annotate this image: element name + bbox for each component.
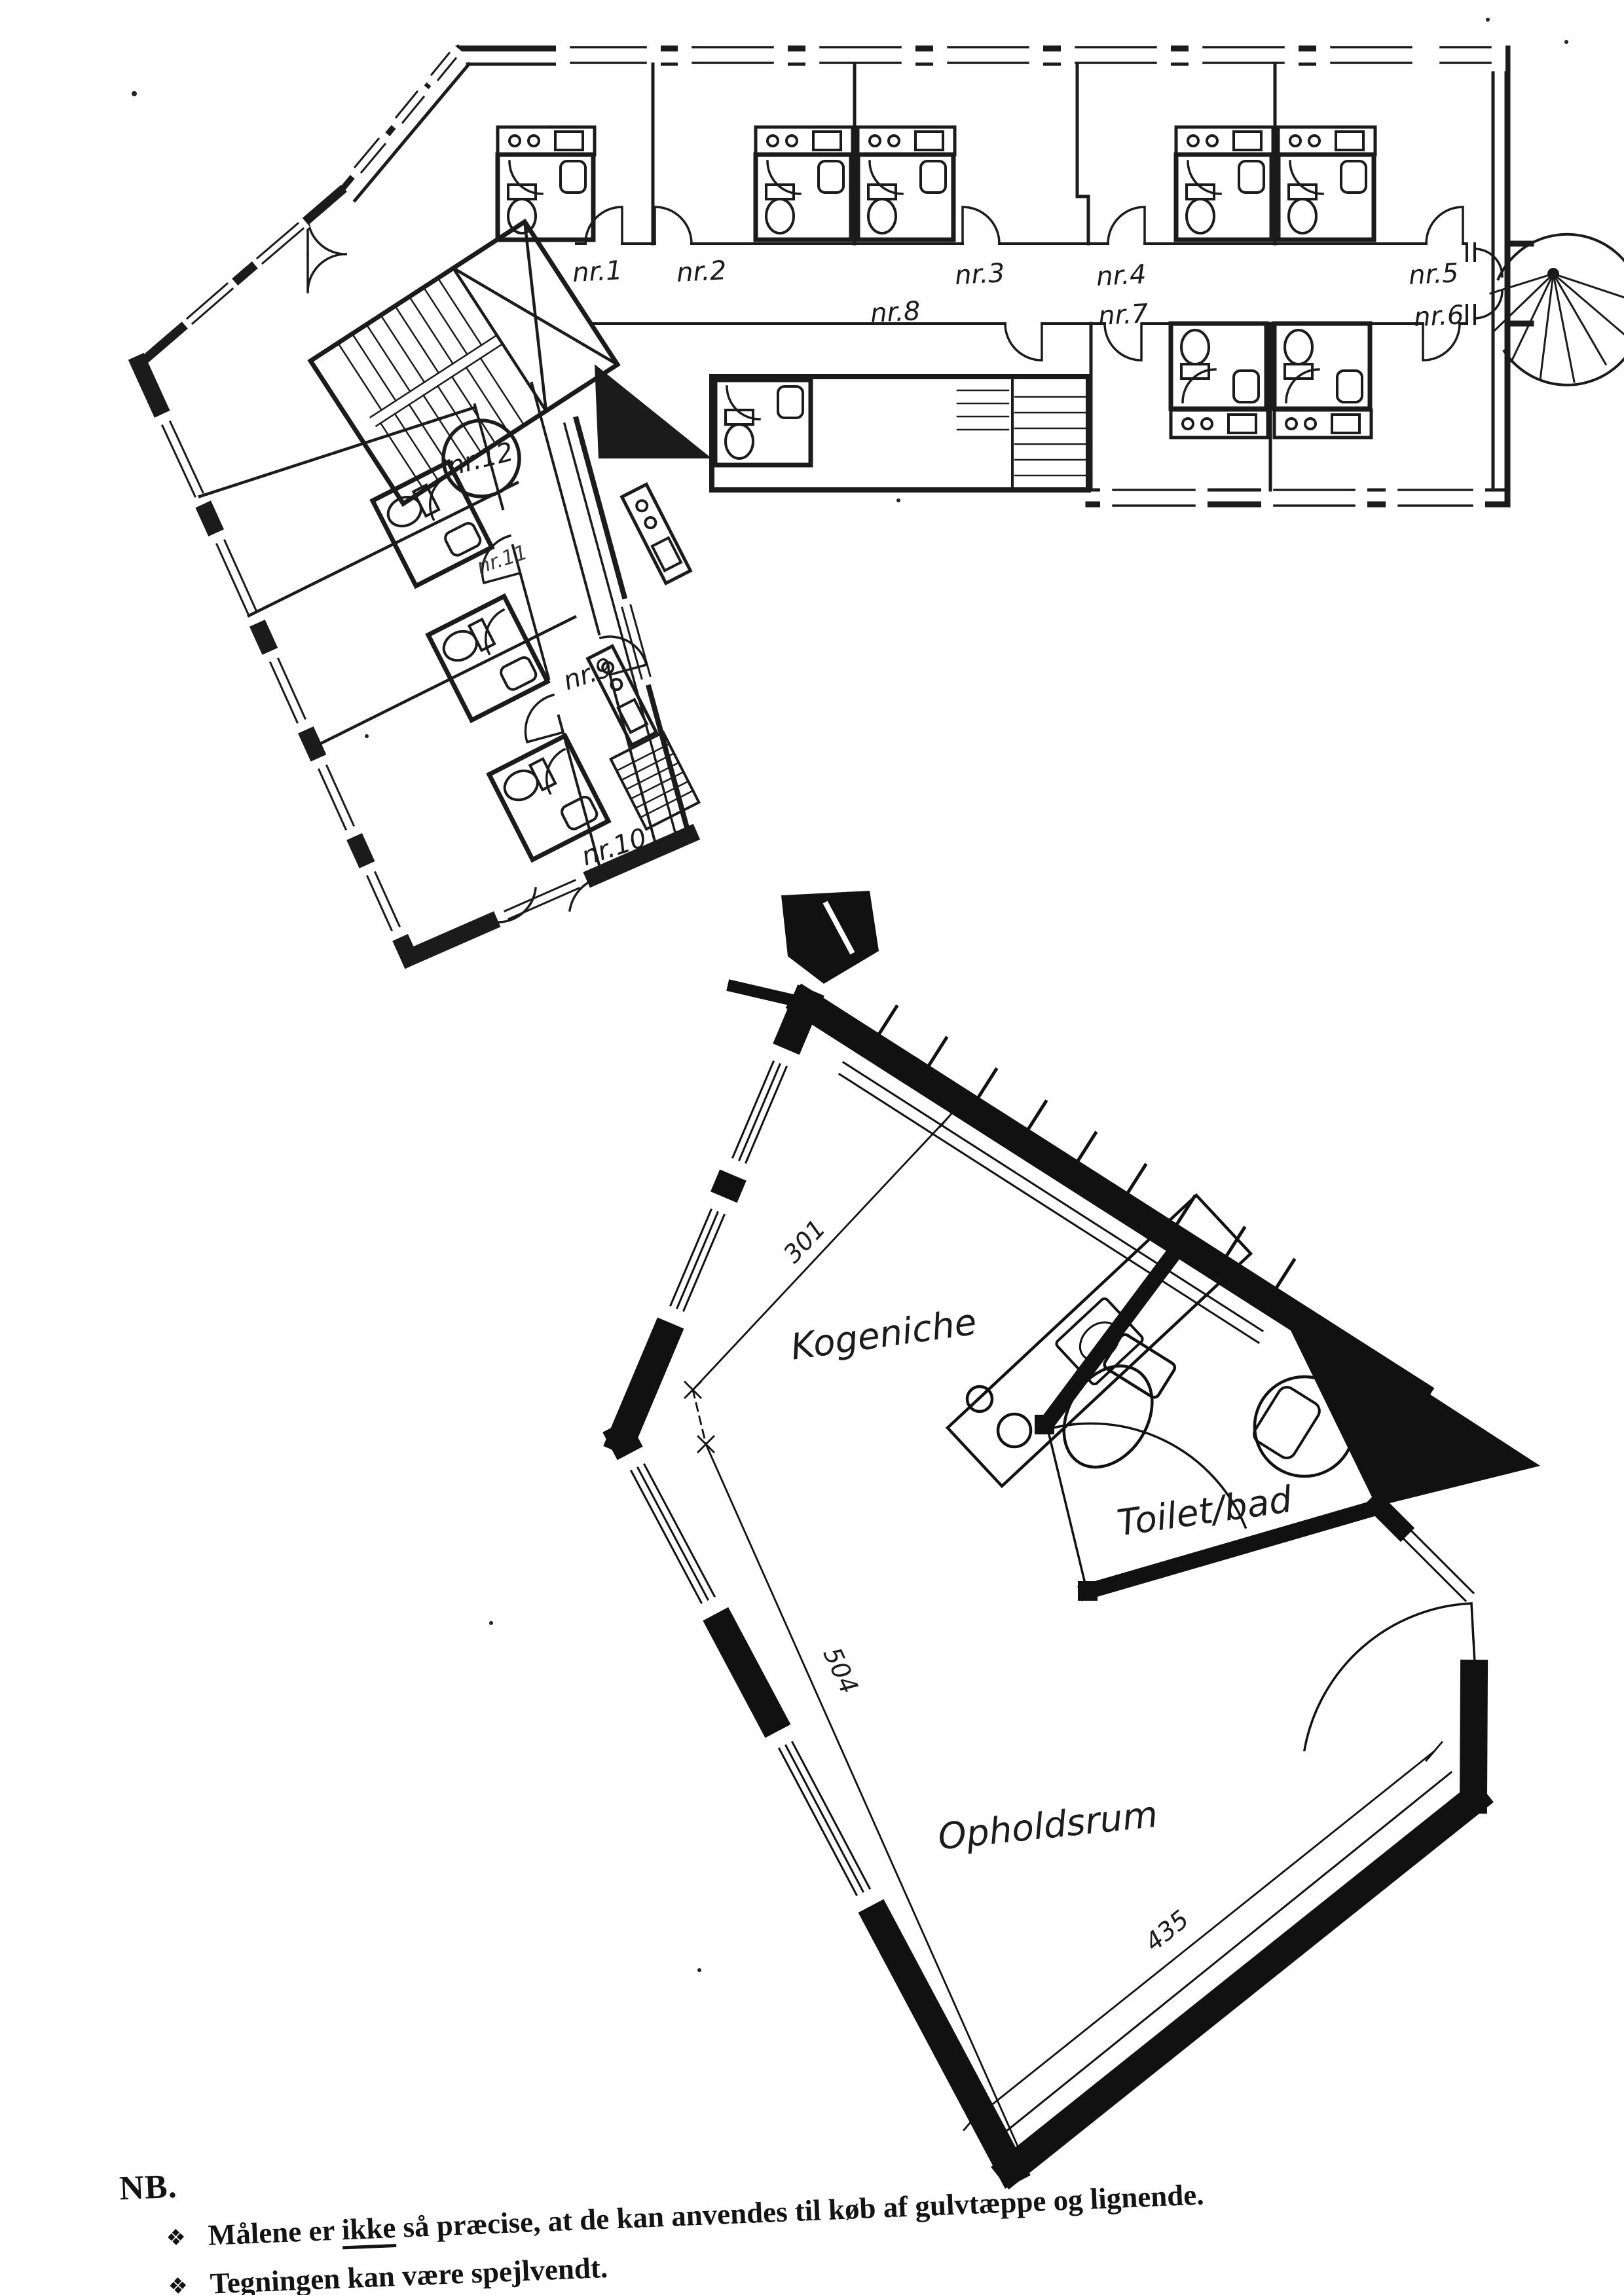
floor-plan-drawing: nr.1 nr.2 nr.3 nr.4 nr.5 nr.8 nr.7 nr.6 … xyxy=(0,0,1624,2295)
diamond-bullet-icon: ❖ xyxy=(168,2273,189,2295)
entrance-doors xyxy=(308,216,346,292)
dimension-504: 504 xyxy=(818,1643,864,1698)
room-label-nr5: nr.5 xyxy=(1408,258,1460,291)
room-label-nr2: nr.2 xyxy=(676,255,728,288)
stove-burner xyxy=(998,1414,1031,1447)
room-label-nr1: nr.1 xyxy=(572,255,623,288)
corner-wall-fill xyxy=(1272,1292,1540,1506)
unit-left-bottom-wall xyxy=(622,1438,1011,2169)
room-label-nr3: nr.3 xyxy=(954,258,1006,291)
room-label-nr9: nr.9 xyxy=(560,652,617,696)
kitchen-label: Kogeniche xyxy=(788,1301,979,1368)
room-label-nr8: nr.8 xyxy=(870,296,921,329)
unit-left-top-wall xyxy=(622,1003,805,1438)
room-label-nr7: nr.7 xyxy=(1098,299,1149,331)
unit-right-wall xyxy=(1304,1505,1481,1800)
spiral-staircase xyxy=(1490,234,1624,385)
chimney-fill xyxy=(781,891,879,984)
room-label-nr6: nr.6 xyxy=(1413,300,1465,333)
entrance-facade-windows xyxy=(355,53,456,172)
unit-plan xyxy=(622,891,1540,2169)
east-wing-bottom-windows xyxy=(1113,490,1472,506)
upper-building-plan xyxy=(139,47,1624,958)
dimension-301: 301 xyxy=(778,1214,832,1269)
living-room-label: Opholdsrum xyxy=(936,1793,1159,1858)
east-wing-top-windows xyxy=(571,47,1490,63)
room8-block xyxy=(712,377,1088,490)
upper-row-pods xyxy=(498,127,1375,240)
bathroom-pod xyxy=(715,380,811,465)
underlined-word: ikke xyxy=(341,2211,397,2249)
room-label-nr11: nr.11 xyxy=(474,540,530,579)
junction-wall-fill xyxy=(595,364,712,458)
scanned-floor-plan-page: nr.1 nr.2 nr.3 nr.4 nr.5 nr.8 nr.7 nr.6 … xyxy=(0,0,1624,2295)
diamond-bullet-icon: ❖ xyxy=(166,2225,187,2251)
room-label-nr4: nr.4 xyxy=(1096,259,1147,292)
